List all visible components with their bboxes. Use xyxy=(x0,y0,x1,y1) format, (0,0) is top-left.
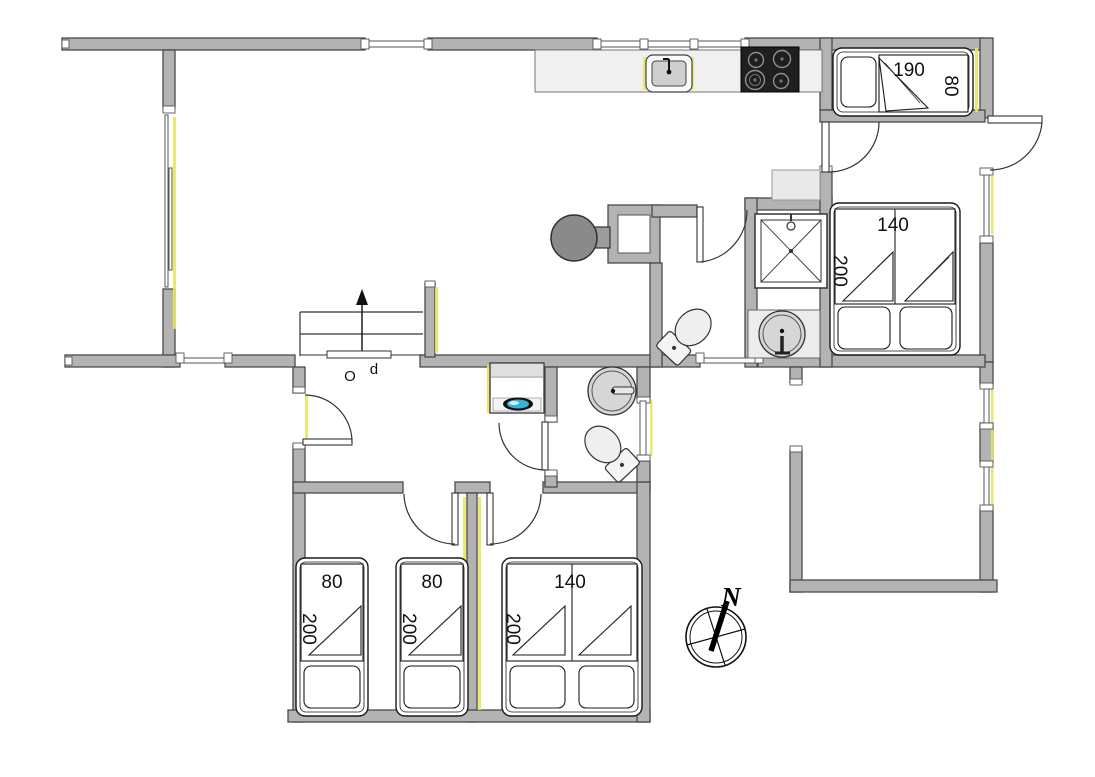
pillow xyxy=(510,666,565,708)
pillow xyxy=(841,57,876,107)
bed-length-label: 200 xyxy=(298,613,319,645)
bed-bottom-single-left: 80 200 xyxy=(296,558,368,716)
bed-bottom-single-mid: 80 200 xyxy=(396,558,468,716)
kitchen xyxy=(535,47,822,92)
pillow xyxy=(579,666,634,708)
window-east-mid xyxy=(984,389,989,423)
bathroom-2 xyxy=(578,367,642,484)
bed-bottom-double: 140 200 xyxy=(502,558,642,716)
door-toilet-1 xyxy=(697,207,747,262)
pillow xyxy=(900,307,952,349)
toilet-2 xyxy=(578,419,642,484)
stairs: O p xyxy=(300,289,423,385)
bed-length-label: 200 xyxy=(502,613,523,645)
window-kitchen xyxy=(597,41,745,47)
wood-stove xyxy=(551,215,610,261)
shower-head-icon xyxy=(787,222,795,230)
bed-width-label: 80 xyxy=(421,572,442,593)
pillow xyxy=(304,666,360,708)
pillow xyxy=(838,307,890,349)
door-bedroom-ne xyxy=(822,122,879,172)
bed-width-label: 140 xyxy=(877,215,909,236)
bed-width-label: 80 xyxy=(940,75,961,96)
kitchen-sink xyxy=(646,55,692,92)
bed-right-double: 140 200 xyxy=(829,203,960,355)
sliding-door-left xyxy=(165,115,168,287)
window-top-left xyxy=(365,41,428,47)
shower xyxy=(755,214,827,288)
water-heater xyxy=(772,170,820,200)
bed-length-label: 200 xyxy=(398,613,419,645)
bed-top-right-single: 190 80 xyxy=(833,48,973,116)
door-entrance-east xyxy=(988,116,1042,170)
door-bedroom-se xyxy=(487,493,541,545)
basin-2 xyxy=(588,367,636,415)
door-bedroom-sw xyxy=(404,493,458,545)
floor-plan-drawing: O p 190 80 140 200 80 200 xyxy=(0,0,1095,777)
door-hall xyxy=(303,395,352,445)
compass: N xyxy=(686,582,746,667)
pillow xyxy=(404,666,460,708)
window-bath-south xyxy=(700,358,757,363)
stairs-label-p: p xyxy=(370,362,378,379)
stove xyxy=(741,47,799,92)
floor-plan-page: O p 190 80 140 200 80 200 xyxy=(0,0,1095,777)
door-bathroom-2 xyxy=(499,422,548,470)
stairs-label-o: O xyxy=(344,368,356,385)
washing-machine xyxy=(490,363,544,413)
bed-length-label: 190 xyxy=(893,60,925,81)
window-bath2 xyxy=(640,401,646,455)
bed-width-label: 80 xyxy=(321,572,342,593)
window-living-south xyxy=(180,358,225,363)
compass-north-label: N xyxy=(720,582,742,612)
bed-length-label: 200 xyxy=(829,255,850,287)
vanity-basin-1 xyxy=(748,310,820,358)
bed-width-label: 140 xyxy=(554,572,586,593)
window-east-lower xyxy=(984,467,989,509)
bathroom-1 xyxy=(655,170,827,367)
stairs-handrail xyxy=(327,351,391,358)
window-east-upper xyxy=(984,174,989,236)
